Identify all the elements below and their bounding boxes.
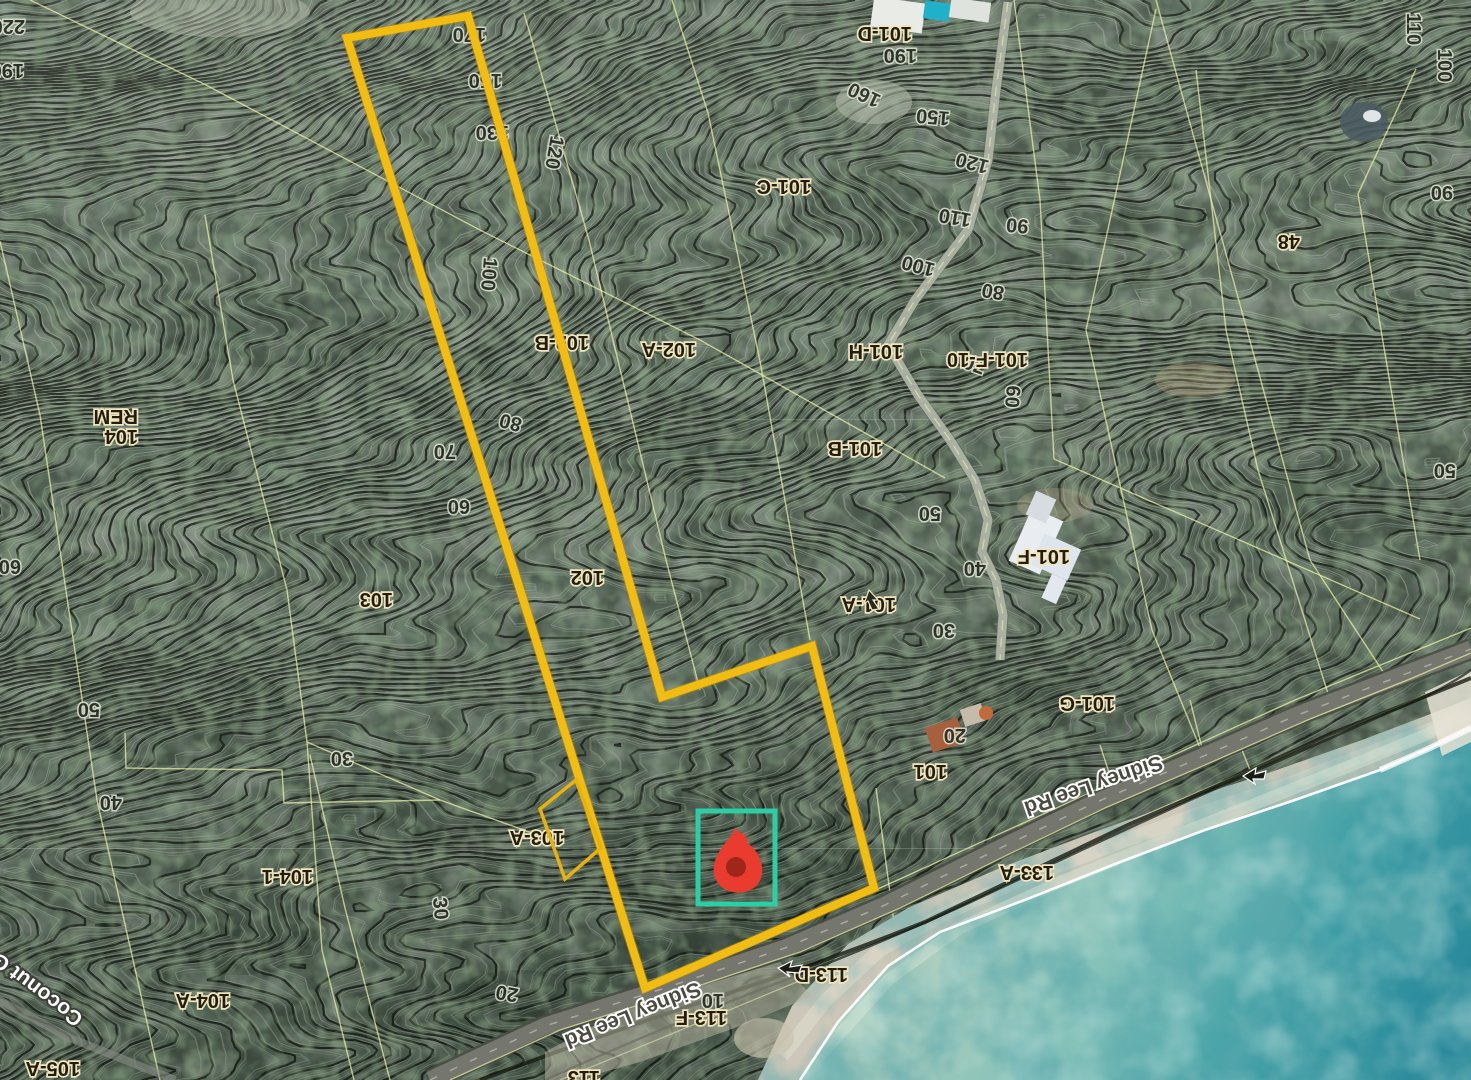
svg-text:190: 190	[0, 59, 24, 81]
svg-text:133-A: 133-A	[1000, 861, 1054, 883]
svg-text:30: 30	[428, 897, 452, 921]
svg-text:20: 20	[944, 724, 966, 746]
svg-text:103: 103	[360, 588, 393, 610]
svg-text:101-F: 101-F	[1018, 545, 1070, 567]
svg-text:30: 30	[933, 619, 955, 641]
svg-text:104-1: 104-1	[262, 865, 313, 887]
svg-text:104-A: 104-A	[176, 989, 230, 1011]
svg-text:101: 101	[914, 760, 947, 782]
svg-text:60: 60	[0, 555, 21, 577]
svg-text:110: 110	[1402, 13, 1424, 45]
svg-text:101-F-10: 101-F-10	[947, 348, 1028, 370]
svg-text:102: 102	[571, 566, 604, 588]
svg-text:30: 30	[331, 747, 353, 769]
svg-text:102-A: 102-A	[642, 338, 696, 360]
svg-text:40: 40	[964, 557, 986, 579]
svg-text:101-B: 101-B	[828, 437, 882, 459]
svg-text:90: 90	[1431, 181, 1453, 203]
svg-text:113: 113	[568, 1066, 600, 1080]
svg-text:100: 100	[476, 257, 501, 292]
svg-text:101-D: 101-D	[858, 22, 912, 44]
svg-text:48: 48	[1278, 230, 1300, 252]
svg-text:220: 220	[0, 15, 25, 37]
svg-text:90: 90	[1005, 213, 1029, 237]
svg-text:101-G: 101-G	[1059, 692, 1115, 714]
svg-text:60: 60	[1000, 385, 1024, 409]
svg-text:60: 60	[448, 495, 470, 517]
svg-text:101-H: 101-H	[849, 340, 903, 362]
svg-text:190: 190	[884, 44, 917, 66]
svg-text:50: 50	[78, 698, 100, 720]
svg-text:20: 20	[494, 980, 520, 1006]
svg-text:101-C: 101-C	[757, 175, 811, 197]
svg-text:50: 50	[1434, 459, 1456, 481]
svg-text:70: 70	[434, 440, 456, 462]
svg-text:103-A: 103-A	[510, 826, 564, 848]
svg-text:50: 50	[919, 502, 941, 524]
svg-text:150: 150	[915, 104, 950, 129]
svg-text:104: 104	[104, 425, 138, 447]
svg-text:113-D: 113-D	[795, 963, 848, 985]
svg-text:113-F: 113-F	[676, 1006, 727, 1028]
svg-text:105-A: 105-A	[26, 1057, 80, 1079]
svg-text:REM: REM	[94, 405, 138, 427]
svg-text:80: 80	[980, 278, 1006, 304]
svg-text:100: 100	[1433, 49, 1455, 82]
svg-text:40: 40	[100, 791, 122, 813]
